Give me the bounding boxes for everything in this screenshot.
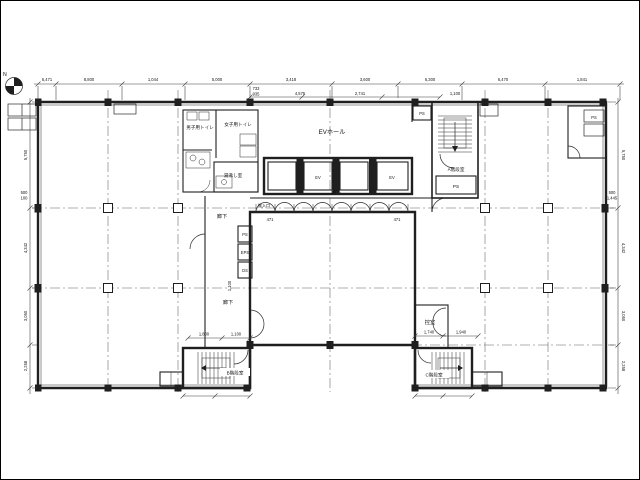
exterior-louver-boxes	[8, 104, 498, 130]
stair-c-arrow	[458, 365, 463, 371]
stair-c-label: C階段室	[425, 372, 443, 379]
ev-hall-label: EVホール	[319, 129, 346, 136]
courtyard-walls	[250, 212, 415, 345]
dim-stair-b-1: 1,100	[231, 332, 242, 337]
dim-top-6: 6,300	[425, 77, 436, 82]
dim-left-small-1: 100	[21, 196, 29, 201]
dim-top-5: 3,600	[360, 77, 371, 82]
stair-a-door-arc	[440, 154, 454, 168]
north-label: N	[3, 72, 7, 78]
corridor-top-label: 廊下	[331, 188, 341, 196]
floor-plan-drawing: N EVホール 男子用トイレ 女子用トイレ 湯沸し室 A階段室 PS B階段室 …	[0, 0, 640, 480]
bottom-dimension-lines	[181, 394, 475, 399]
elevator-bank	[264, 102, 431, 194]
corridor-door-arc	[190, 234, 205, 249]
dim-top-0: 6,471	[42, 77, 53, 82]
dim-left-1: 4,342	[23, 242, 28, 253]
dim-top-4: 3,418	[286, 77, 297, 82]
dim-right-small-1: 1,445	[607, 196, 618, 201]
loading-entrance-label: 搬入口	[258, 202, 270, 208]
dim-sub-0: 733	[253, 86, 261, 91]
corridor-left-lower-label: 廊下	[223, 298, 233, 306]
shaft-ps-corner-label: PS	[591, 115, 597, 120]
stair-b-door-arc	[234, 350, 248, 364]
womens-toilet-label: 女子用トイレ	[224, 121, 252, 128]
shaft-ps-hall-label: PS	[419, 111, 425, 116]
elevator-2-label: EV	[389, 175, 395, 180]
dim-left-0: 5,750	[23, 149, 28, 160]
dim-left-small-0: 500	[21, 190, 29, 195]
dim-courtyard-0: 471	[267, 217, 275, 222]
toilet-door-arc	[198, 180, 210, 192]
stair-c-door-arc	[418, 350, 431, 363]
dim-top-1: 8,800	[84, 77, 95, 82]
stair-a-arrow	[452, 146, 458, 152]
shaft-ds-label: DS	[242, 268, 248, 273]
dim-stair-b-0: 1,800	[199, 332, 210, 337]
stair-a-lower-door-arc	[432, 198, 446, 212]
dim-top-7: 6,470	[498, 77, 509, 82]
dim-right-0: 5,750	[621, 150, 626, 161]
shaft-ps-label: PS	[242, 232, 248, 237]
scalloped-corridor-edge	[256, 203, 408, 213]
ps-a-label: PS	[453, 184, 459, 189]
dimension-text: 6,471 8,800 1,044 5,000 3,418 3,600 6,30…	[21, 77, 626, 372]
shaft-eps-label: EPS	[241, 250, 249, 255]
courtyard-double-door	[250, 310, 264, 338]
right-dimension-line	[608, 98, 621, 394]
dim-right-2: 3,050	[621, 311, 626, 322]
mens-toilet-label: 男子用トイレ	[186, 124, 214, 131]
kitchenette-label: 湯沸し室	[224, 172, 243, 179]
dim-sub-3: 2,741	[355, 91, 366, 96]
perimeter-columns	[35, 99, 609, 392]
dim-right-small-0: 500	[609, 190, 617, 195]
corner-room-door-arc	[568, 146, 580, 158]
dim-left-2: 3,050	[23, 310, 28, 321]
anteroom-label: 控室	[425, 318, 435, 326]
dim-left-3: 2,258	[23, 360, 28, 371]
dim-top-8: 1,841	[577, 77, 588, 82]
stair-b-label: B階段室	[227, 370, 244, 377]
elevator-1-label: EV	[315, 175, 321, 180]
north-arrow-icon	[6, 78, 23, 95]
dim-sub-1: 935	[253, 92, 261, 97]
stair-c	[415, 348, 502, 388]
dim-stair-c-0: 1,740	[424, 330, 435, 335]
dim-stair-c-1: 1,940	[456, 330, 467, 335]
floor-plan-svg: N EVホール 男子用トイレ 女子用トイレ 湯沸し室 A階段室 PS B階段室 …	[0, 0, 640, 480]
top-right-room	[568, 106, 606, 158]
dim-right-3: 2,258	[621, 361, 626, 372]
anteroom	[415, 305, 448, 348]
sheet-border	[1, 1, 640, 480]
labels: N EVホール 男子用トイレ 女子用トイレ 湯沸し室 A階段室 PS B階段室 …	[3, 72, 597, 379]
stair-a	[432, 102, 478, 212]
dim-right-1: 4,342	[621, 243, 626, 254]
dim-top-2: 1,044	[148, 77, 159, 82]
dim-courtyard-1: 471	[394, 217, 402, 222]
dim-sub-4: 1,100	[450, 91, 461, 96]
dim-corridor-width: 1,100	[227, 280, 232, 291]
dim-sub-2: 4,575	[295, 91, 306, 96]
stair-a-label: A階段室	[448, 166, 465, 173]
left-dimension-line	[28, 98, 38, 394]
dim-top-3: 5,000	[212, 77, 223, 82]
corridor-left-upper-label: 廊下	[217, 212, 227, 220]
